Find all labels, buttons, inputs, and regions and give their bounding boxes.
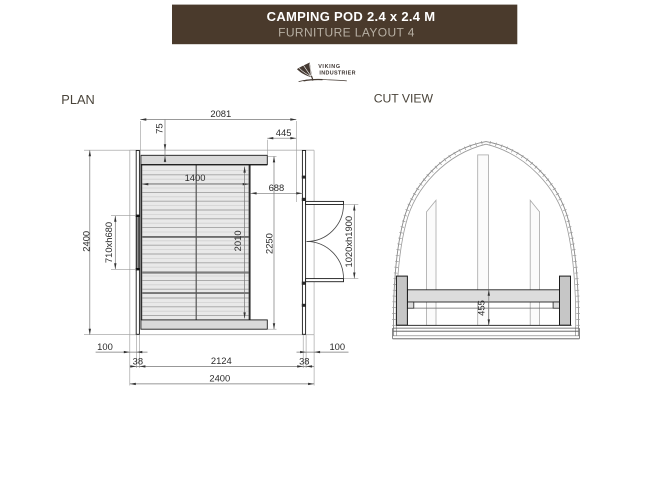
svg-text:1020xh1900: 1020xh1900 xyxy=(343,216,354,268)
svg-text:100: 100 xyxy=(97,341,113,352)
svg-text:75: 75 xyxy=(153,123,164,133)
svg-text:38: 38 xyxy=(299,355,309,366)
svg-text:2400: 2400 xyxy=(209,372,230,383)
svg-text:2124: 2124 xyxy=(211,355,232,366)
svg-text:CAMPING POD 2.4 x 2.4 M: CAMPING POD 2.4 x 2.4 M xyxy=(267,9,436,24)
svg-text:688: 688 xyxy=(269,182,285,193)
svg-text:2400: 2400 xyxy=(80,231,91,252)
svg-text:INDUSTRIER: INDUSTRIER xyxy=(319,70,355,76)
svg-text:2010: 2010 xyxy=(232,230,243,251)
svg-text:FURNITURE LAYOUT 4: FURNITURE LAYOUT 4 xyxy=(278,26,415,40)
svg-text:VIKING: VIKING xyxy=(318,64,340,70)
svg-text:CUT VIEW: CUT VIEW xyxy=(374,92,434,106)
svg-text:1400: 1400 xyxy=(185,172,206,183)
svg-text:710xh680: 710xh680 xyxy=(103,222,114,263)
svg-text:445: 445 xyxy=(276,127,292,138)
svg-text:PLAN: PLAN xyxy=(61,92,94,107)
svg-text:100: 100 xyxy=(329,341,345,352)
svg-text:2250: 2250 xyxy=(264,233,275,254)
svg-text:2081: 2081 xyxy=(210,108,231,119)
svg-text:38: 38 xyxy=(133,355,143,366)
svg-text:455: 455 xyxy=(475,300,486,316)
